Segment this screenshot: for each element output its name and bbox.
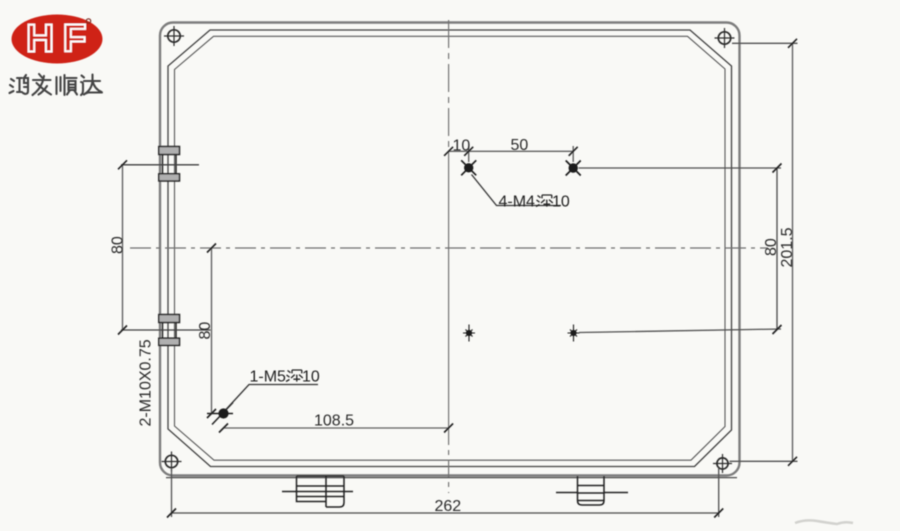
svg-text:262: 262: [435, 498, 462, 515]
svg-text:80: 80: [197, 322, 214, 340]
svg-text:4-M4: 4-M4: [499, 194, 536, 211]
svg-text:2-M10X0.75: 2-M10X0.75: [138, 339, 155, 426]
svg-text:10: 10: [552, 194, 570, 211]
svg-text:10: 10: [453, 138, 471, 155]
svg-text:80: 80: [763, 238, 780, 256]
svg-text:10: 10: [302, 369, 320, 386]
svg-text:50: 50: [511, 137, 529, 154]
svg-text:HF: HF: [26, 18, 95, 61]
svg-text:201.5: 201.5: [779, 227, 796, 267]
svg-text:80: 80: [110, 236, 127, 254]
svg-text:108.5: 108.5: [314, 413, 354, 430]
svg-text:1-M5: 1-M5: [250, 369, 287, 386]
